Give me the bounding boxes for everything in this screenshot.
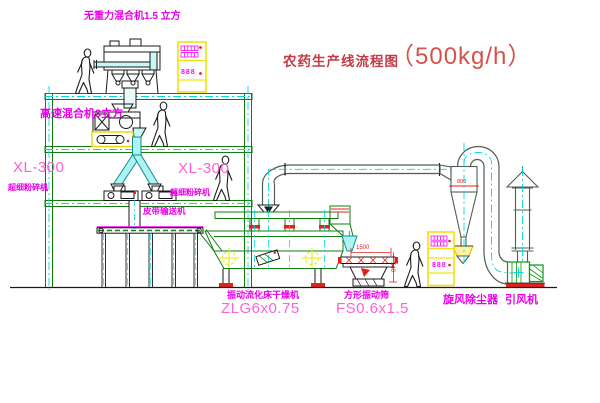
control-cabinet-top bbox=[178, 42, 206, 92]
dryer-body bbox=[197, 205, 353, 269]
label-fan: 引风机 bbox=[505, 295, 538, 306]
label-screen-name: 方形振动筛 bbox=[344, 291, 389, 300]
label-xl300-left-model: XL-300 bbox=[13, 160, 64, 175]
label-high-speed-mixer: 高速混合机3立方 bbox=[40, 109, 123, 120]
label-dryer-model: ZLG6x0.75 bbox=[221, 301, 300, 316]
worker-figure-ground bbox=[405, 242, 424, 287]
belt-conveyor-legs bbox=[102, 233, 198, 287]
label-xl300-left-name: 超细粉碎机 bbox=[8, 184, 48, 192]
belt-conveyor bbox=[97, 227, 203, 233]
label-dryer-name: 振动流化床干燥机 bbox=[227, 291, 299, 300]
dryer-legs bbox=[219, 269, 325, 288]
dryer-duct-centerline bbox=[269, 169, 452, 207]
worker-figure-top-floor bbox=[76, 49, 95, 94]
cabinet-right-display: 888 bbox=[432, 262, 447, 269]
label-screen-model: FS0.6x1.5 bbox=[336, 301, 409, 316]
control-cabinet-right bbox=[428, 232, 454, 286]
gravity-free-mixer bbox=[94, 39, 160, 108]
label-xl300-mid-name: 超细粉碎机 bbox=[170, 189, 210, 197]
cabinet-top-display: 888 bbox=[181, 69, 196, 76]
dryer-discharge-funnel bbox=[342, 231, 357, 251]
high-speed-mixer-drive-box bbox=[92, 132, 133, 147]
dryer-vibrator-motor bbox=[256, 250, 280, 265]
pesticide-line-flow-diagram: 农药生产线流程图 （500kg/h） 无重力混合机1.5 立方 高速混合机3立方… bbox=[0, 0, 600, 403]
dimension-cyclone-dia: 800 bbox=[457, 180, 466, 186]
label-belt-conveyor: 皮带输送机 bbox=[143, 207, 186, 216]
label-gravity-free-mixer: 无重力混合机1.5 立方 bbox=[84, 12, 181, 22]
induced-draft-fan bbox=[505, 262, 545, 287]
label-cyclone: 旋风除尘器 bbox=[443, 295, 498, 306]
down-duct bbox=[129, 200, 140, 229]
dimension-screen-length: 1500 bbox=[356, 245, 369, 251]
diagram-capacity: （500kg/h） bbox=[390, 45, 532, 69]
worker-figure-second-floor bbox=[152, 102, 171, 147]
label-xl300-mid-model: XL-300 bbox=[178, 161, 229, 176]
dimension-screen-height: 540 bbox=[389, 262, 395, 272]
exhaust-duct-run bbox=[458, 147, 509, 285]
diagram-title: 农药生产线流程图 bbox=[283, 55, 399, 69]
pulverizer-left bbox=[104, 186, 138, 201]
